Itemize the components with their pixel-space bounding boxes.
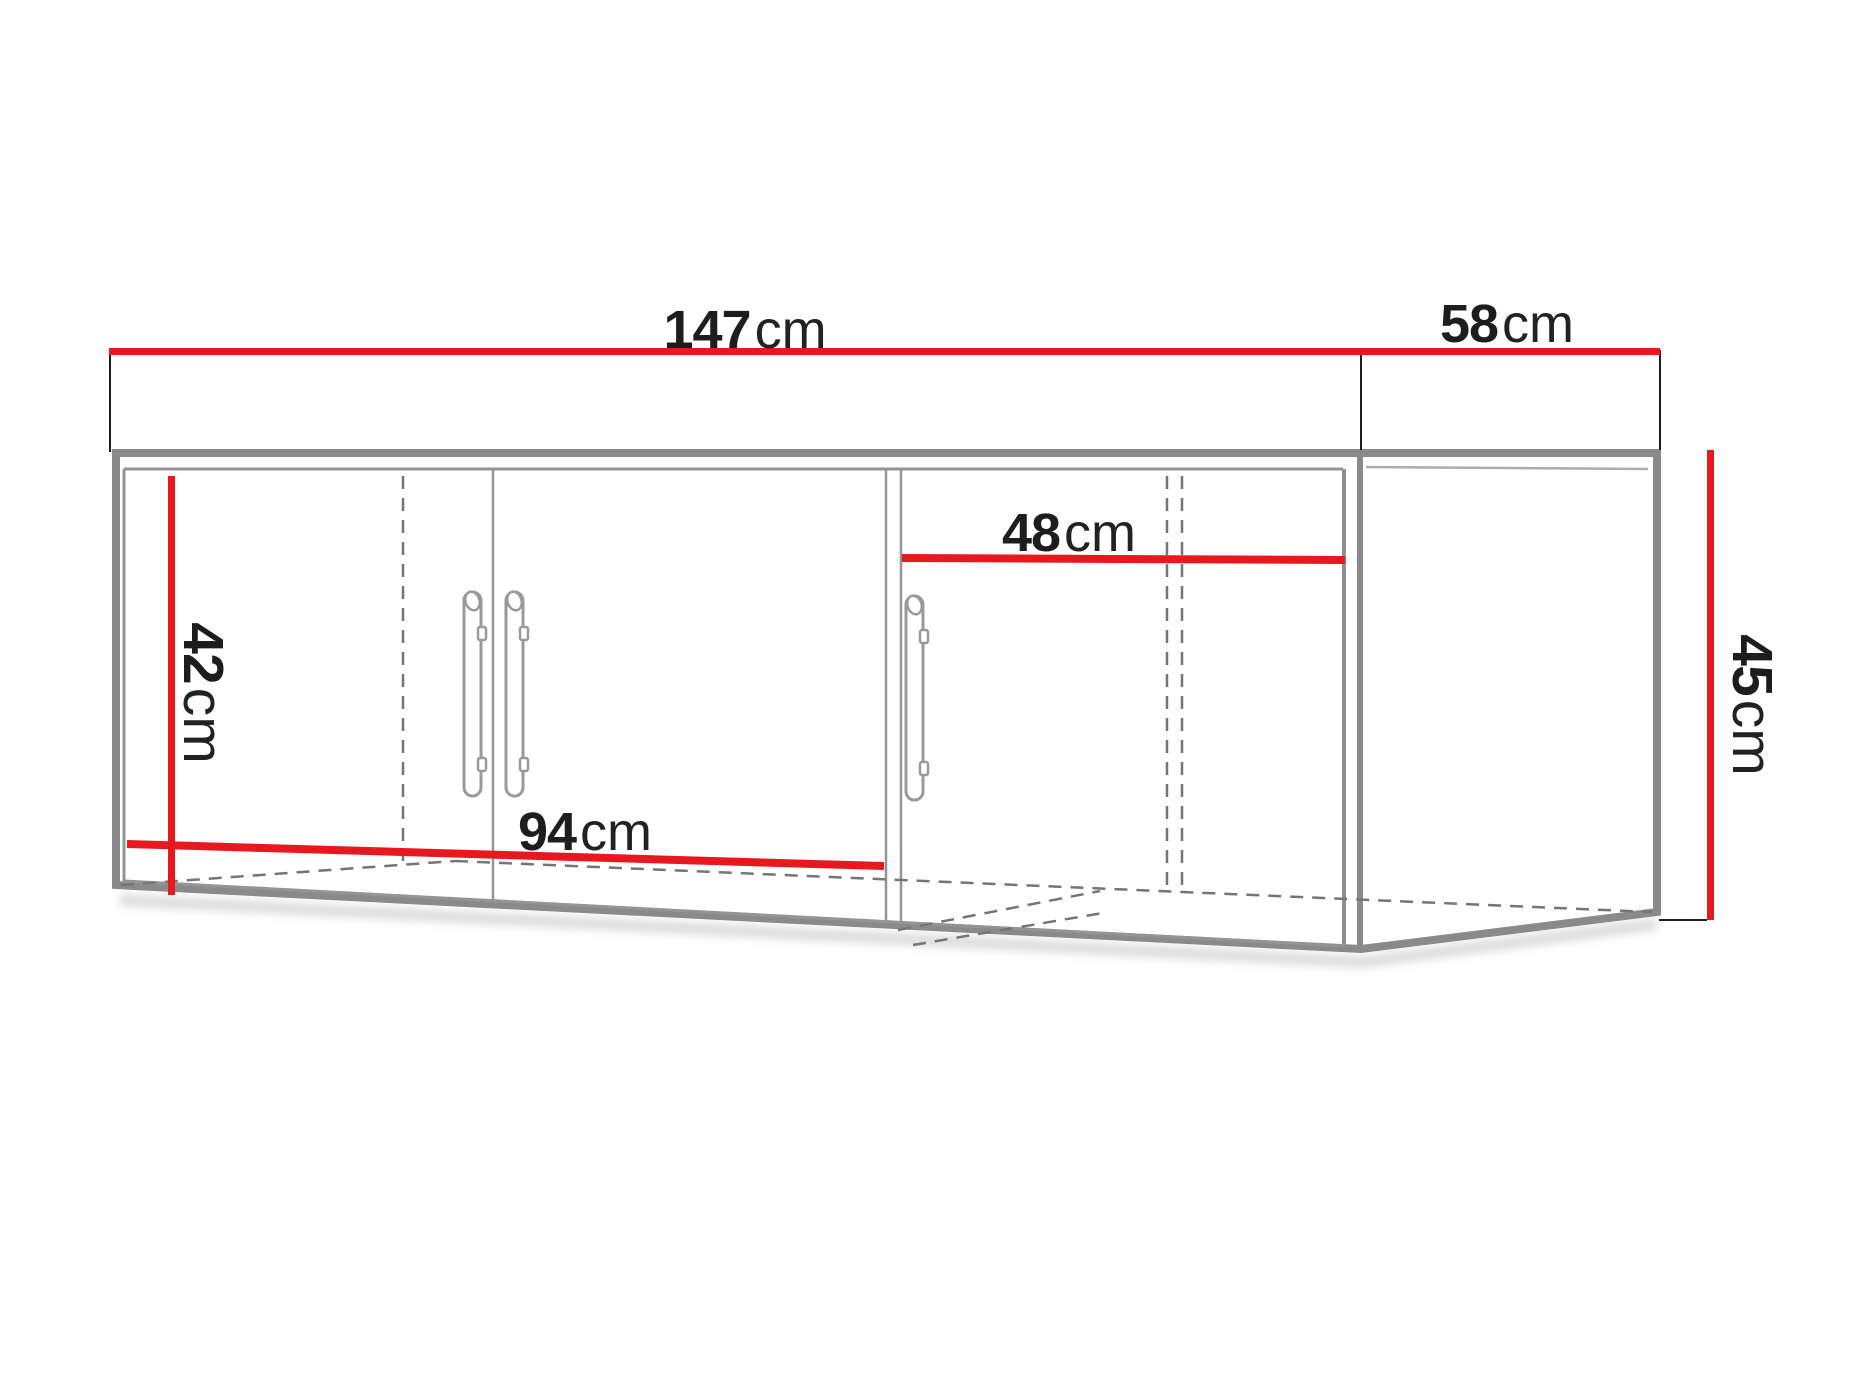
corner-cabinet-dimension-diagram: 147cm 58cm 48cm 94cm 42cm 45cm bbox=[0, 0, 1860, 1395]
dimension-label-left-height: 42cm bbox=[171, 622, 235, 763]
dimension-label-double-door-span: 94cm bbox=[518, 802, 652, 862]
dimension-line-45cm bbox=[1707, 450, 1714, 920]
dimension-line-42cm bbox=[168, 476, 175, 895]
dimension-label-side-depth: 58cm bbox=[1440, 294, 1574, 354]
dimension-label-right-height: 45cm bbox=[1720, 634, 1784, 775]
dimension-label-right-door-width: 48cm bbox=[1002, 503, 1136, 563]
dimension-label-total-width: 147cm bbox=[663, 300, 826, 360]
dimension-drawing-page: 147cm 58cm 48cm 94cm 42cm 45cm bbox=[0, 0, 1860, 1395]
dimension-line-147cm bbox=[109, 348, 1660, 355]
cabinet-body bbox=[116, 453, 1657, 949]
